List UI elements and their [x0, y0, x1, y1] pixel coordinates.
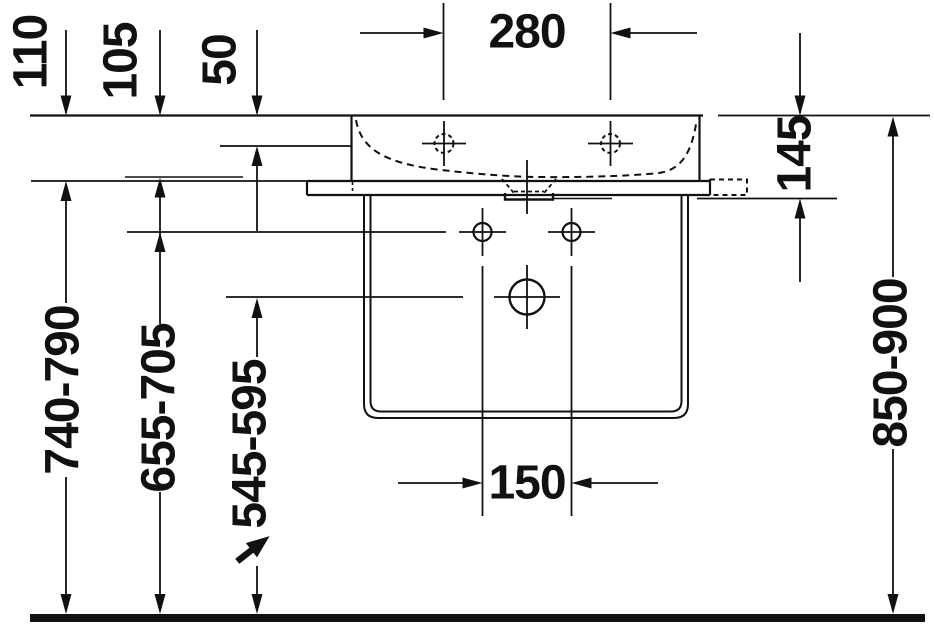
siphon-cover-outer	[364, 196, 688, 418]
dim-label-110: 110	[5, 15, 58, 89]
dim-50	[252, 30, 263, 231]
dim-545-arrow-down-icon	[252, 594, 263, 614]
dim-105	[155, 30, 166, 198]
console-shelf-hidden-extension	[710, 180, 747, 196]
dim-105-arrow-down-icon	[155, 96, 166, 116]
washbasin-installation-drawing: 280 110 105 50 145 740-790	[0, 0, 934, 626]
dim-740-arrow-down-icon	[61, 594, 72, 614]
dim-label-50: 50	[194, 34, 247, 85]
faucet-hole-right	[588, 121, 633, 166]
dim-label-545-595: 545-595	[224, 359, 277, 528]
dim-655-arrow-down-icon	[155, 594, 166, 614]
dim-50-arrow-up-icon	[252, 146, 263, 166]
fixing-hole-left	[459, 208, 506, 256]
faucet-hole-left	[422, 121, 466, 166]
dim-label-280: 280	[488, 6, 565, 59]
dim-280-arrow-right-icon	[424, 28, 444, 39]
dim-145-arrow-down-icon	[795, 96, 806, 116]
dim-label-850-900: 850-900	[865, 278, 918, 447]
siphon-cover-inner	[371, 196, 682, 412]
dim-label-655-705: 655-705	[133, 323, 186, 492]
dim-label-145: 145	[769, 115, 822, 192]
drain-hole	[494, 265, 560, 329]
dim-110-arrow-down-icon	[61, 96, 72, 116]
height-adjustability-arrow-icon	[232, 529, 275, 568]
dim-150-arrow-right-icon	[463, 478, 483, 489]
drain-outline	[502, 160, 556, 214]
dim-110-arrow-up-icon	[61, 181, 72, 201]
dim-850-arrow-down-icon	[888, 594, 899, 614]
dim-label-740-790: 740-790	[37, 305, 90, 474]
dim-145-arrow-up-icon	[795, 199, 806, 219]
dim-label-150: 150	[488, 457, 565, 510]
dim-655-arrow-up-icon	[155, 232, 166, 252]
technical-drawing-page: 280 110 105 50 145 740-790	[0, 0, 934, 626]
dim-label-105: 105	[95, 22, 148, 99]
dim-545-arrow-up-icon	[252, 298, 263, 318]
adjustability-arrow-tail	[237, 548, 254, 561]
siphon-cover	[364, 196, 688, 418]
washbasin-outline	[352, 116, 700, 182]
dim-850-arrow-up-icon	[888, 117, 899, 137]
fixing-hole-right	[548, 208, 595, 256]
dim-50-arrow-down-icon	[252, 96, 263, 116]
floor-line	[30, 614, 925, 622]
dim-150-arrow-left-icon	[572, 478, 592, 489]
dim-280-arrow-left-icon	[611, 28, 631, 39]
